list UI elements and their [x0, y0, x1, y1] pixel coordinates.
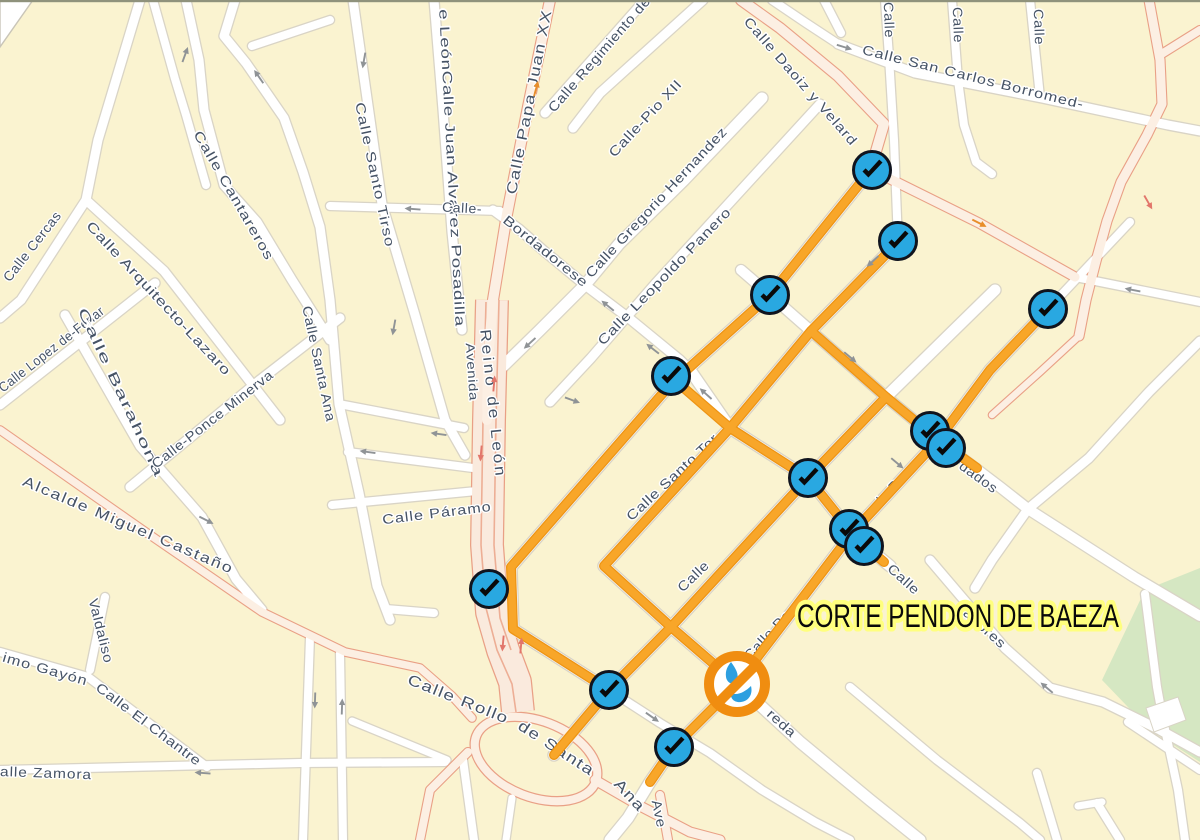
svg-text:Calle-: Calle- [442, 200, 483, 217]
svg-text:alle Zamora: alle Zamora [0, 764, 92, 782]
svg-text:Calle: Calle [950, 7, 966, 44]
svg-text:CORTE PENDON DE BAEZA: CORTE PENDON DE BAEZA [797, 598, 1119, 634]
svg-text:Calle: Calle [881, 2, 897, 39]
svg-text:Calle: Calle [1031, 9, 1047, 46]
